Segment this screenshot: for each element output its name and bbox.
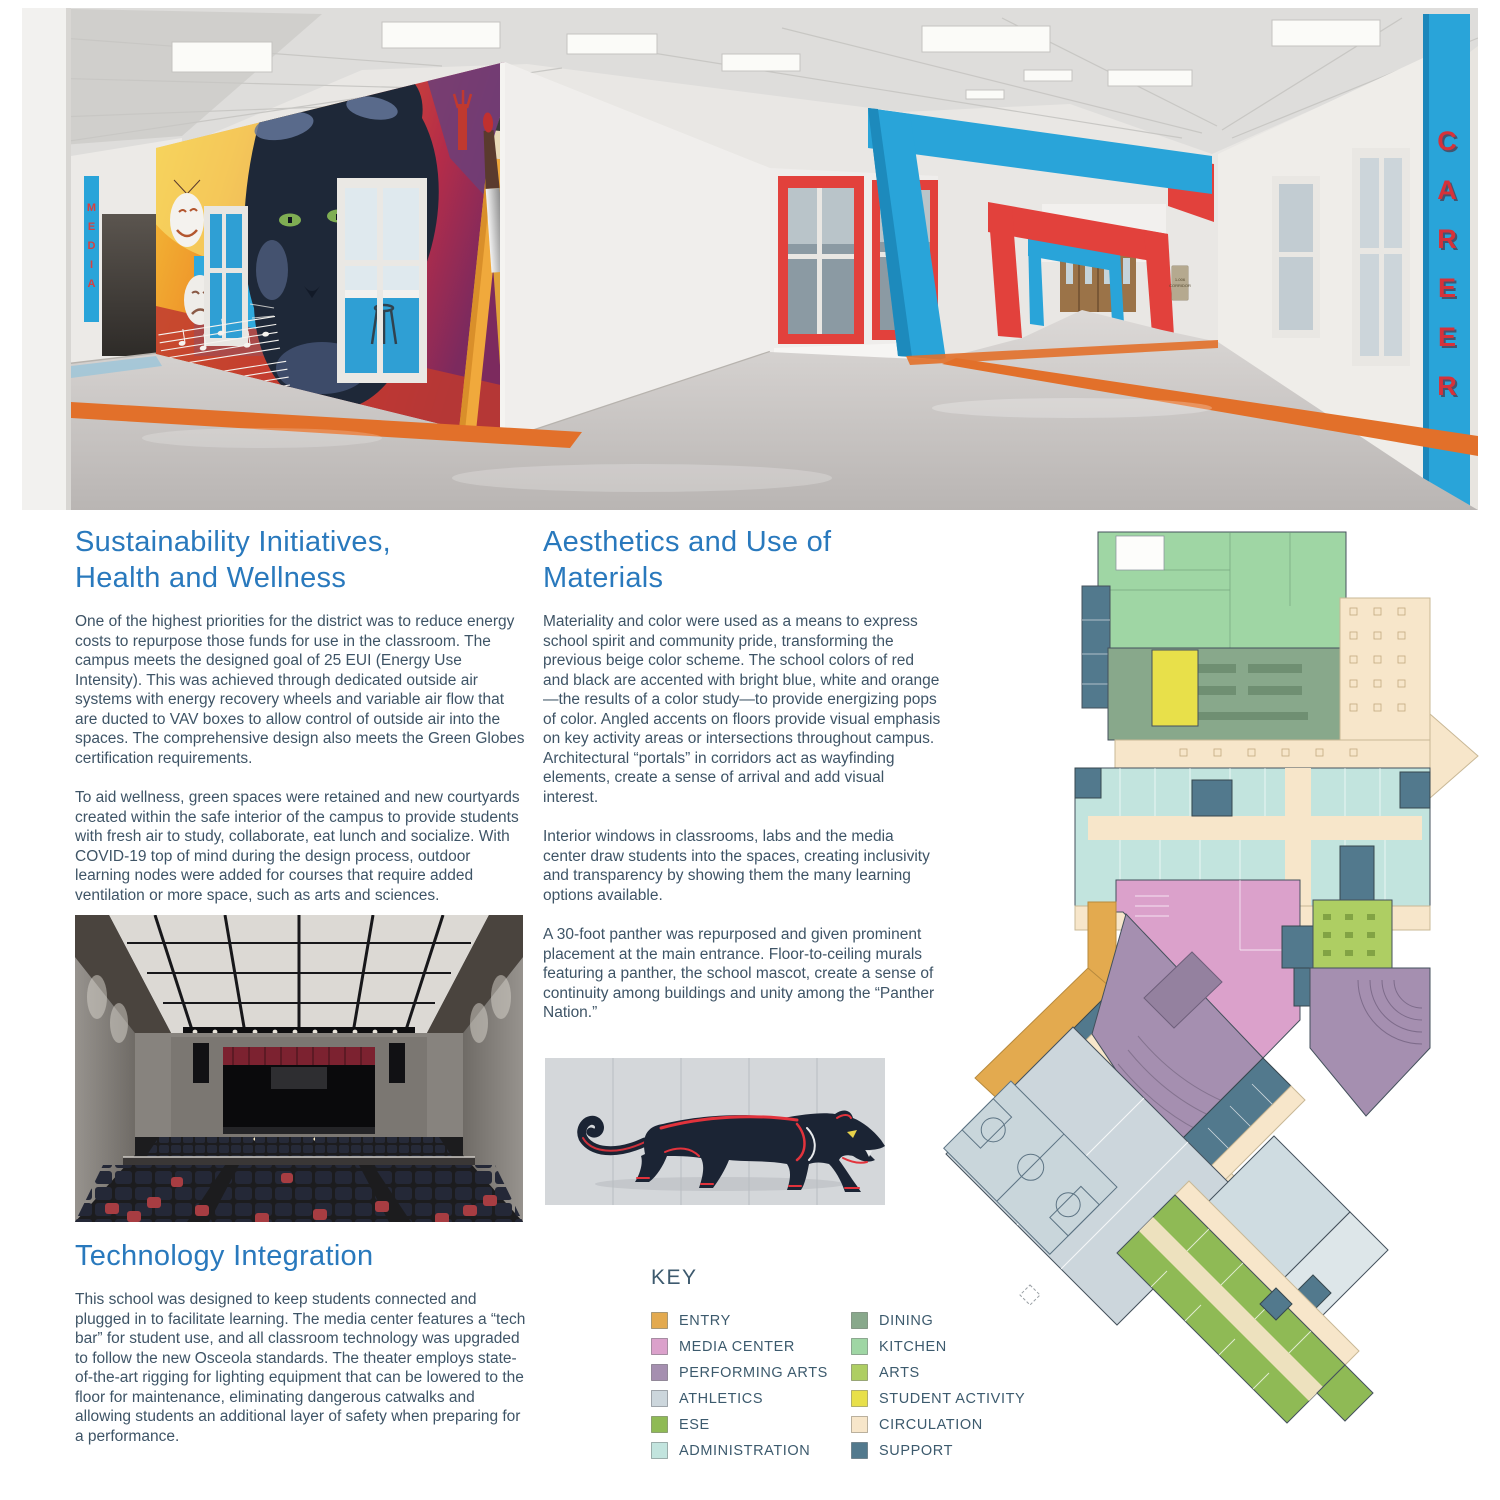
sustainability-para-1: One of the highest priorities for the di… [75, 612, 525, 768]
plan-dashed-marker [1020, 1285, 1040, 1305]
key-row-performing-arts: PERFORMING ARTS [651, 1364, 851, 1381]
plan-lecture-hall [1310, 968, 1430, 1116]
aesthetics-section: Aesthetics and Use of Materials Material… [543, 524, 941, 1043]
key-row-media-center: MEDIA CENTER [651, 1338, 851, 1355]
circulation-swatch [851, 1416, 868, 1433]
administration-swatch [651, 1442, 668, 1459]
brochure-page: MEDIA CAREER 1-006 CORRIDOR Sustainabili… [0, 0, 1500, 1500]
mural-window-right [337, 178, 427, 383]
student-activity-swatch [851, 1390, 868, 1407]
mural-window-left [204, 206, 248, 346]
aesthetics-para-1: Materiality and color were used as a mea… [543, 612, 941, 807]
performing-arts-swatch [651, 1364, 668, 1381]
technology-title: Technology Integration [75, 1238, 530, 1274]
plan-dining [1108, 648, 1340, 740]
arts-swatch [851, 1364, 868, 1381]
auditorium-photo [75, 915, 523, 1222]
key-row-athletics: ATHLETICS [651, 1390, 851, 1407]
technology-section: Technology Integration This school was d… [75, 1238, 530, 1466]
room-sign-number: 1-006 [1175, 278, 1185, 282]
dining-swatch [851, 1312, 868, 1329]
alcove-opening [102, 214, 156, 356]
hero-photo-graphic [22, 8, 1478, 510]
career-sign-text: CAREER [1423, 36, 1470, 510]
plan-support-kitchen [1082, 586, 1110, 708]
aesthetics-para-3: A 30-foot panther was repurposed and giv… [543, 925, 941, 1023]
key-row-ese: ESE [651, 1416, 851, 1433]
plan-student-activity [1152, 650, 1198, 726]
athletics-swatch [651, 1390, 668, 1407]
technology-para-1: This school was designed to keep student… [75, 1290, 530, 1446]
support-swatch [851, 1442, 868, 1459]
key-row-entry: ENTRY [651, 1312, 851, 1329]
plan-cafeteria-circulation [1340, 598, 1430, 740]
sustainability-para-2: To aid wellness, green spaces were retai… [75, 788, 525, 905]
foreground-pillar [22, 8, 66, 510]
panther-logo-photo [545, 1058, 885, 1205]
kitchen-swatch [851, 1338, 868, 1355]
stage [223, 1047, 375, 1141]
media-sign-text: MEDIA [84, 176, 99, 322]
sustainability-section: Sustainability Initiatives, Health and W… [75, 524, 525, 925]
aesthetics-para-2: Interior windows in classrooms, labs and… [543, 827, 941, 905]
plan-arts [1313, 900, 1392, 968]
aesthetics-title: Aesthetics and Use of Materials [543, 524, 941, 596]
floor-plan [930, 528, 1490, 1500]
ese-swatch [651, 1416, 668, 1433]
room-sign: 1-006 CORRIDOR [1172, 266, 1188, 300]
entry-swatch [651, 1312, 668, 1329]
key-column-1: ENTRY MEDIA CENTER PERFORMING ARTS ATHLE… [651, 1312, 851, 1468]
hero-photo: MEDIA CAREER 1-006 CORRIDOR [22, 8, 1478, 510]
room-sign-label: CORRIDOR [1169, 284, 1191, 288]
sustainability-title: Sustainability Initiatives, Health and W… [75, 524, 525, 596]
key-row-administration: ADMINISTRATION [651, 1442, 851, 1459]
media-center-swatch [651, 1338, 668, 1355]
plan-kitchen [1098, 532, 1346, 648]
